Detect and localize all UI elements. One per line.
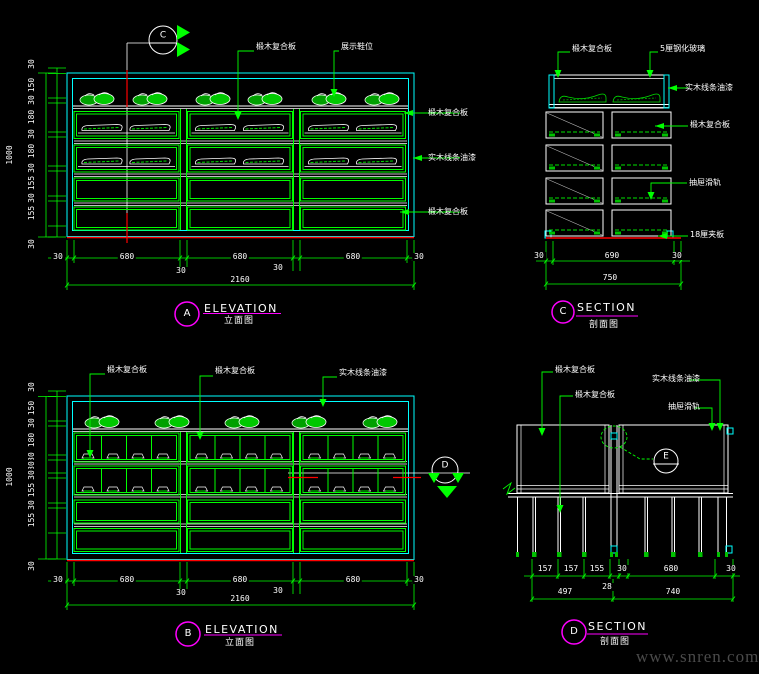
material-label: 实木线条油漆 [652, 375, 700, 383]
dim-label: 155 [28, 512, 36, 528]
dim-label: 155 [28, 482, 36, 498]
material-label: 抽屉滑轨 [689, 179, 721, 187]
material-label: 抽屉滑轨 [668, 403, 700, 411]
dim-label: 30 [28, 469, 36, 481]
section-d-drawing [503, 372, 740, 644]
title-circle-letter: C [560, 307, 567, 317]
title-en: ELEVATION [205, 624, 279, 635]
material-label: 椴木复合板 [256, 43, 296, 51]
dim-label: 30 [615, 565, 629, 573]
section-marker-letter: C [160, 32, 166, 41]
dim-label: 30 [28, 192, 36, 204]
dim-label: 30 [28, 128, 36, 140]
dim-total-label: 1000 [6, 466, 14, 487]
material-label: 椴木复合板 [428, 208, 468, 216]
dim-label: 157 [562, 565, 580, 573]
dim-total-label: 1000 [6, 144, 14, 165]
dim-label: 30 [28, 94, 36, 106]
dim-label: 680 [231, 253, 249, 261]
dim-label: 150 [28, 77, 36, 93]
dim-label: 680 [344, 253, 362, 261]
dim-label: 30 [51, 253, 65, 261]
material-label: 椴木复合板 [428, 109, 468, 117]
material-label: 18厘夹板 [690, 231, 724, 239]
dim-label: 30 [174, 267, 188, 275]
dim-label: 180 [28, 143, 36, 159]
dim-total-label: 497 [556, 588, 574, 596]
title-en: SECTION [577, 302, 636, 313]
dim-total-label: 740 [664, 588, 682, 596]
dim-total-label: 2160 [228, 276, 251, 284]
material-label: 椴木复合板 [555, 366, 595, 374]
dim-label: 30 [28, 417, 36, 429]
dim-label: 680 [344, 576, 362, 584]
dim-total-label: 2160 [228, 595, 251, 603]
title-circle-letter: B [185, 629, 192, 639]
material-label: 椴木复合板 [215, 367, 255, 375]
section-marker-letter: D [442, 462, 449, 471]
material-label: 5厘钢化玻璃 [660, 45, 705, 53]
dim-label: 30 [412, 253, 426, 261]
title-cn: 剖面图 [589, 321, 619, 330]
dim-label: 30 [412, 576, 426, 584]
material-label: 椴木复合板 [572, 45, 612, 53]
dim-label: 155 [28, 175, 36, 191]
dim-label: 690 [603, 252, 621, 260]
dim-label: 680 [118, 576, 136, 584]
dim-label: 180 [28, 109, 36, 125]
title-cn: 立面图 [224, 317, 254, 326]
material-label: 实木线条油漆 [428, 154, 476, 162]
dim-label: 680 [662, 565, 680, 573]
title-en: ELEVATION [204, 303, 278, 314]
dim-label: 30 [28, 499, 36, 511]
dim-label: 30 [28, 381, 36, 393]
title-circle-letter: D [570, 627, 578, 637]
dim-label: 30 [532, 252, 546, 260]
dim-label: 30 [28, 58, 36, 70]
dim-label: 30 [670, 252, 684, 260]
dim-label: 680 [118, 253, 136, 261]
dim-label: 30 [51, 576, 65, 584]
dim-label: 150 [28, 400, 36, 416]
title-en: SECTION [588, 621, 647, 632]
dim-label: 155 [588, 565, 606, 573]
elevation-b-drawing [38, 374, 470, 646]
material-label: 椴木复合板 [690, 121, 730, 129]
dim-label: 30 [28, 560, 36, 572]
dim-label: 180 [28, 432, 36, 448]
dim-label: 155 [28, 205, 36, 221]
material-label: 展示鞋位 [341, 43, 373, 51]
material-label: 实木线条油漆 [339, 369, 387, 377]
dim-label: 30 [271, 587, 285, 595]
material-label: 实木线条油漆 [685, 84, 733, 92]
dim-label: 30 [271, 264, 285, 272]
title-circle-letter: A [184, 309, 191, 319]
detail-marker-letter: E [663, 453, 669, 462]
dim-label: 30 [28, 238, 36, 250]
dim-label: 28 [600, 583, 614, 591]
dim-total-label: 750 [601, 274, 619, 282]
cad-drawing-canvas: 椴木复合板 展示鞋位 椴木复合板 实木线条油漆 椴木复合板 C 30 150 3… [0, 0, 759, 674]
dim-label: 680 [231, 576, 249, 584]
dim-label: 30 [28, 162, 36, 174]
watermark: www.snren.com [636, 647, 759, 667]
title-cn: 剖面图 [600, 638, 630, 647]
material-label: 椴木复合板 [575, 391, 615, 399]
dim-label: 30 [174, 589, 188, 597]
dim-label: 157 [536, 565, 554, 573]
cad-linework [0, 0, 759, 674]
material-label: 椴木复合板 [107, 366, 147, 374]
section-c-drawing [536, 52, 690, 323]
dim-label: 30 [724, 565, 738, 573]
title-cn: 立面图 [225, 639, 255, 648]
